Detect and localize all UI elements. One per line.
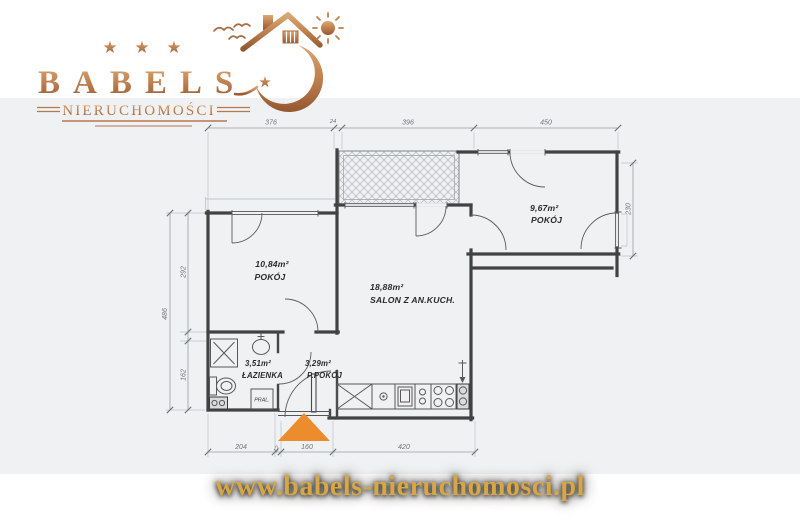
house-window-icon xyxy=(283,31,298,43)
brand-star-1-icon: ★ xyxy=(102,38,117,58)
door-swing-balcony xyxy=(416,206,446,236)
door-swing-french-window xyxy=(581,213,617,249)
floorplan-drawing: ★ ★ ★ BABELS ★ NIERUCHOMOŚCI xyxy=(0,0,800,516)
sun-icon xyxy=(313,13,343,43)
balcony xyxy=(339,151,459,204)
washing-machine-icon: PRAL. xyxy=(251,389,273,409)
hall-name: P.POKÓJ xyxy=(307,371,343,380)
bathroom-name: ŁAZIENKA xyxy=(241,371,283,380)
french-window-icon xyxy=(615,212,628,248)
vent-arrow-icon xyxy=(459,360,467,383)
washer-label: PRAL. xyxy=(254,398,270,404)
door-swing-salon-room2 xyxy=(471,215,506,250)
door-opening-room2 xyxy=(510,149,545,156)
dim-bottom-420: 420 xyxy=(398,444,410,451)
dim-top-24: 24 xyxy=(329,119,336,125)
window-room1-icon xyxy=(232,210,318,217)
dim-left-292: 292 xyxy=(181,266,188,279)
hob-dot-icon xyxy=(380,393,387,400)
dim-bottom-160: 160 xyxy=(301,444,313,451)
room2-area: 9,67m² xyxy=(530,203,559,213)
hall-area: 3,29m² xyxy=(305,359,331,368)
dim-bottom-204: 204 xyxy=(234,444,247,451)
door-swing-room2 xyxy=(510,152,545,187)
room2-name: POKÓJ xyxy=(531,214,562,225)
room1-name: POKÓJ xyxy=(254,271,285,282)
brand-name: BABELS xyxy=(38,65,246,101)
kitchen-counter xyxy=(337,384,469,409)
brand-logo: ★ ★ ★ BABELS ★ NIERUCHOMOŚCI xyxy=(37,13,343,126)
counter-x-icon xyxy=(337,384,372,409)
salon-name: SALON Z AN.KUCH. xyxy=(370,295,455,305)
birds-icon xyxy=(214,24,250,39)
dim-top-376: 376 xyxy=(265,120,277,127)
brand-accent-star-icon: ★ xyxy=(258,73,271,91)
shower-icon xyxy=(211,339,238,367)
bathroom-cabinet-icon xyxy=(210,397,228,409)
entrance-marker xyxy=(278,413,330,441)
sink-icon xyxy=(253,334,270,355)
toilet-icon xyxy=(210,377,236,395)
room-labels: 10,84m² POKÓJ 18,88m² SALON Z AN.KUCH. 9… xyxy=(241,203,562,380)
brand-star-3-icon: ★ xyxy=(166,38,181,58)
dim-top-450: 450 xyxy=(540,120,552,127)
roof-icon xyxy=(243,15,320,49)
fridge-column-icon xyxy=(457,384,469,409)
salon-area: 18,88m² xyxy=(370,282,404,292)
room1-area: 10,84m² xyxy=(255,259,289,269)
dim-top-396: 396 xyxy=(402,120,414,127)
dim-left-162: 162 xyxy=(181,369,188,381)
listing-image: ★ ★ ★ BABELS ★ NIERUCHOMOŚCI xyxy=(0,0,800,516)
brand-star-2-icon: ★ xyxy=(134,38,149,58)
dishwasher-icon xyxy=(420,389,426,404)
kitchen-sink-icon xyxy=(398,387,412,406)
brand-tagline: NIERUCHOMOŚCI xyxy=(62,102,216,119)
kitchen-fixtures xyxy=(337,360,469,409)
dim-left-486: 486 xyxy=(162,308,169,320)
door-swing-room1-window xyxy=(232,213,262,243)
stove-icon xyxy=(434,387,454,407)
website-url: www.babels-nieruchomosci.pl xyxy=(0,471,800,503)
door-swing-room1 xyxy=(285,299,318,332)
window-room2-icon xyxy=(478,149,508,156)
bathroom-area: 3,51m² xyxy=(245,359,271,368)
